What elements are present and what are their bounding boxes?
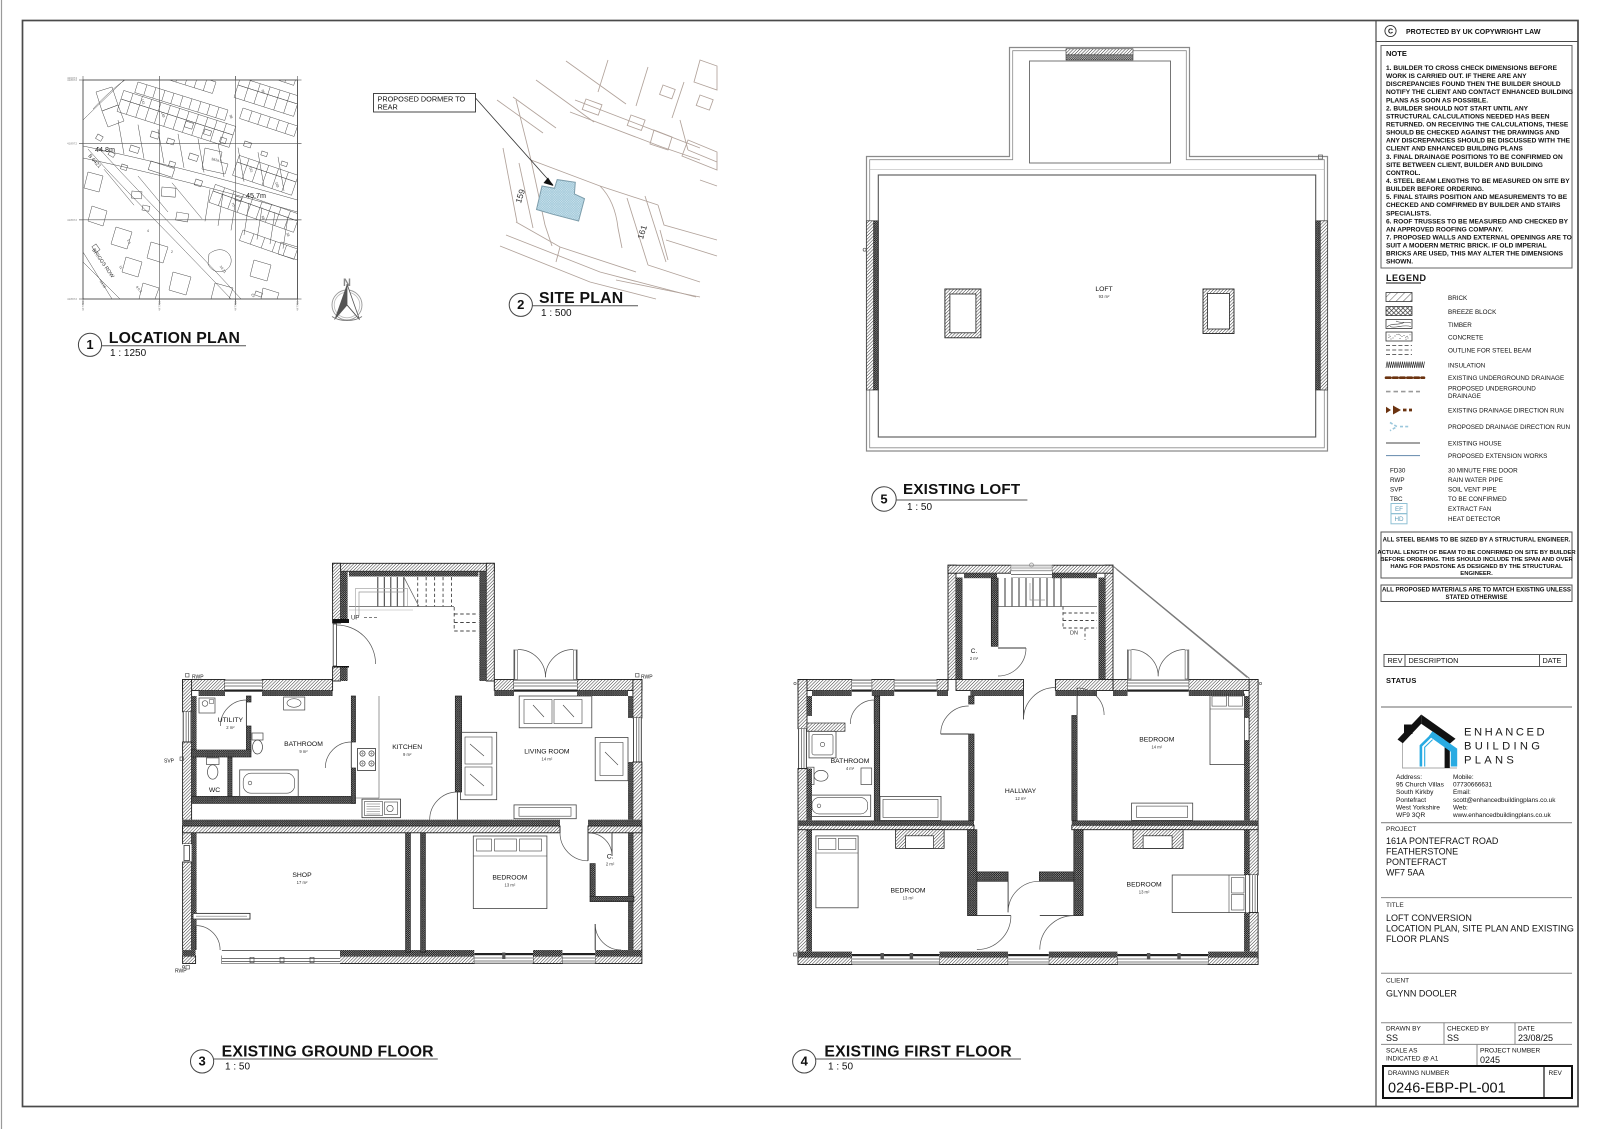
svg-text:ALL PROPOSED MATERIALS ARE TO: ALL PROPOSED MATERIALS ARE TO MATCH EXIS… [1382,587,1571,594]
svg-text:13 m²: 13 m² [1139,889,1150,894]
svg-text:0246-EBP-PL-001: 0246-EBP-PL-001 [1388,1081,1506,1097]
svg-text:WC: WC [209,787,220,794]
svg-text:12 m²: 12 m² [1015,796,1026,801]
svg-text:HEAT DETECTOR: HEAT DETECTOR [1448,516,1501,523]
svg-text:BEDROOM: BEDROOM [492,874,527,881]
svg-text:447750: 447750 [81,301,85,311]
svg-text:ACTUAL LENGTH OF BEAM TO BE CO: ACTUAL LENGTH OF BEAM TO BE CONFIRMED ON… [1377,550,1576,556]
svg-text:CLIENT AND ENHANCED BUILDING P: CLIENT AND ENHANCED BUILDING PLANS [1386,146,1523,153]
svg-text:9 m²: 9 m² [403,752,412,757]
svg-text:418972: 418972 [67,142,77,146]
svg-text:CHECKED AND COMFIRMED BY BUILD: CHECKED AND COMFIRMED BY BUILDER AND STA… [1386,202,1561,209]
svg-text:SS: SS [1447,1033,1459,1043]
svg-text:SHOWN.: SHOWN. [1386,259,1413,266]
svg-text:STATUS: STATUS [1386,676,1417,685]
svg-text:44.8m: 44.8m [95,145,115,154]
svg-text:REV: REV [1388,656,1403,665]
svg-text:PROTECTED BY UK COPYWRIGHT LAW: PROTECTED BY UK COPYWRIGHT LAW [1406,29,1541,36]
svg-text:ENHANCED: ENHANCED [1464,727,1547,739]
svg-text:7. PROPOSED WALLS AND EXTERNAL: 7. PROPOSED WALLS AND EXTERNAL OPENINGS … [1386,234,1572,241]
svg-text:161A PONTEFRACT ROAD: 161A PONTEFRACT ROAD [1386,836,1499,846]
svg-text:scott@enhancedbuildingplans.co: scott@enhancedbuildingplans.co.uk [1453,797,1556,804]
svg-text:South Kirkby: South Kirkby [1396,789,1434,796]
svg-text:5. FINAL STAIRS POSITION AND M: 5. FINAL STAIRS POSITION AND MEASUREMENT… [1386,194,1568,201]
svg-text:KITCHEN: KITCHEN [392,744,422,751]
svg-text:C.: C. [607,854,614,861]
svg-text:BRICK: BRICK [1448,295,1468,302]
svg-text:LOFT: LOFT [1095,286,1112,293]
svg-text:RAIN WATER PIPE: RAIN WATER PIPE [1448,477,1503,484]
svg-text:RWP: RWP [1390,477,1405,484]
svg-text:4 m²: 4 m² [846,766,855,771]
svg-text:SVP: SVP [1390,487,1403,494]
svg-text:PLANS: PLANS [1464,755,1517,767]
svg-text:SPECIALISTS.: SPECIALISTS. [1386,210,1431,217]
svg-text:1. BUILDER TO CROSS CHECK DIME: 1. BUILDER TO CROSS CHECK DIMENSIONS BEF… [1386,65,1558,72]
svg-text:BUILDER BEFORE ORDERING.: BUILDER BEFORE ORDERING. [1386,186,1484,193]
svg-text:CONTROL.: CONTROL. [1386,170,1421,177]
svg-text:13 m²: 13 m² [903,896,914,901]
svg-text:WORK IS CARRIED OUT. IF THERE: WORK IS CARRIED OUT. IF THERE ARE ANY [1386,73,1527,80]
svg-text:STRUCTURAL CALCULATIONS NEEDED: STRUCTURAL CALCULATIONS NEEDED HAS BEEN [1386,113,1550,120]
svg-text:BRICKS ARE USED, THIS MAY ALTE: BRICKS ARE USED, THIS MAY ALTER THE DIME… [1386,251,1564,258]
svg-text:3: 3 [198,1054,205,1069]
svg-text:DRAWING NUMBER: DRAWING NUMBER [1388,1070,1449,1077]
svg-text:C: C [1388,29,1393,36]
svg-text:GLYNN DOOLER: GLYNN DOOLER [1386,989,1457,999]
svg-text:Pontefract: Pontefract [1396,797,1426,804]
svg-text:BEDROOM: BEDROOM [1139,736,1174,743]
svg-text:5: 5 [880,491,887,506]
svg-text:STATED OTHERWISE: STATED OTHERWISE [1446,594,1508,601]
svg-text:3. FINAL DRAINAGE POSITIONS TO: 3. FINAL DRAINAGE POSITIONS TO BE CONFIR… [1386,154,1563,161]
svg-text:1 : 50: 1 : 50 [907,502,932,513]
svg-text:RWP: RWP [192,675,204,681]
svg-text:SITE BETWEEN CLIENT, BUILDER A: SITE BETWEEN CLIENT, BUILDER AND BUILDIN… [1386,162,1543,169]
svg-text:TO BE CONFIRMED: TO BE CONFIRMED [1448,496,1507,503]
svg-text:2 m²: 2 m² [606,862,615,867]
svg-text:Mobile:: Mobile: [1453,774,1474,781]
svg-text:1 : 1250: 1 : 1250 [110,348,147,359]
svg-text:EXISTING FIRST FLOOR: EXISTING FIRST FLOOR [824,1044,1012,1061]
svg-text:WF7 5AA: WF7 5AA [1386,868,1425,878]
svg-text:PROJECT: PROJECT [1386,826,1416,833]
svg-text:REV: REV [1549,1070,1563,1077]
svg-text:SCALE AS: SCALE AS [1386,1048,1418,1055]
svg-text:EXISTING GROUND FLOOR: EXISTING GROUND FLOOR [222,1044,435,1061]
svg-text:TITLE: TITLE [1386,902,1404,909]
svg-text:BEDROOM: BEDROOM [1127,881,1162,888]
svg-text:SHOP: SHOP [292,872,312,879]
svg-text:Address:: Address: [1396,774,1422,781]
svg-text:SVP: SVP [164,759,175,765]
svg-text:TBC: TBC [1390,496,1403,503]
svg-text:PROJECT NUMBER: PROJECT NUMBER [1480,1048,1540,1055]
svg-text:0245: 0245 [1480,1055,1500,1065]
svg-text:PLANS AS SOON AS POSSIBLE.: PLANS AS SOON AS POSSIBLE. [1386,97,1488,104]
svg-text:4: 4 [147,229,149,233]
svg-text:9 m²: 9 m² [299,749,308,754]
svg-text:INDICATED @ A1: INDICATED @ A1 [1386,1056,1439,1063]
svg-text:PROPOSED EXTENSION WORKS: PROPOSED EXTENSION WORKS [1448,453,1547,460]
svg-text:93 m²: 93 m² [1099,294,1110,299]
svg-text:EXISTING HOUSE: EXISTING HOUSE [1448,440,1502,447]
svg-text:UTILITY: UTILITY [218,717,244,724]
svg-text:1 : 50: 1 : 50 [225,1062,250,1073]
svg-text:45.7m: 45.7m [246,191,266,200]
svg-text:2 m²: 2 m² [210,795,219,800]
svg-text:CHECKED BY: CHECKED BY [1447,1026,1490,1033]
svg-text:FEATHERSTONE: FEATHERSTONE [1386,847,1458,857]
svg-text:420074: 420074 [67,76,77,80]
svg-text:PONTEFRACT: PONTEFRACT [1386,857,1448,867]
svg-text:LOCATION PLAN, SITE PLAN AND E: LOCATION PLAN, SITE PLAN AND EXISTING [1386,924,1574,934]
svg-text:DRAWN BY: DRAWN BY [1386,1026,1421,1033]
svg-text:HALLWAY: HALLWAY [1005,788,1037,795]
svg-text:2 m²: 2 m² [226,725,235,730]
svg-text:EF: EF [1395,506,1403,513]
svg-text:DRAINAGE: DRAINAGE [1448,393,1481,400]
svg-text:LOFT CONVERSION: LOFT CONVERSION [1386,913,1472,923]
svg-text:CONCRETE: CONCRETE [1448,335,1483,342]
svg-text:EXISTING LOFT: EXISTING LOFT [903,481,1021,498]
svg-text:UP: UP [351,616,359,622]
svg-text:LOCATION PLAN: LOCATION PLAN [109,330,240,347]
svg-text:SS: SS [1386,1033,1398,1043]
svg-text:1 : 500: 1 : 500 [541,308,572,319]
svg-text:418972: 418972 [67,218,77,222]
svg-text:14 m²: 14 m² [1151,744,1162,749]
svg-text:95 Church Villas: 95 Church Villas [1396,782,1445,789]
svg-text:BATHROOM: BATHROOM [284,741,323,748]
svg-text:ANY DISCREPANCIES SHOULD BE DI: ANY DISCREPANCIES SHOULD BE DISCUSSED WI… [1386,138,1571,145]
svg-text:4: 4 [801,1054,809,1069]
svg-text:4. STEEL BEAM LENGTHS TO BE ME: 4. STEEL BEAM LENGTHS TO BE MEASURED ON … [1386,178,1570,185]
svg-text:FLOOR PLANS: FLOOR PLANS [1386,934,1449,944]
svg-text:WF9 3QR: WF9 3QR [1396,812,1426,819]
svg-text:REAR: REAR [378,103,398,112]
svg-text:14 m²: 14 m² [542,756,553,761]
svg-text:2: 2 [171,250,173,254]
svg-text:1 : 50: 1 : 50 [828,1062,853,1073]
svg-text:EXTRACT FAN: EXTRACT FAN [1448,506,1492,513]
svg-text:SOIL VENT PIPE: SOIL VENT PIPE [1448,487,1497,494]
svg-text:DISCREPANCIES FOUND THEN THE B: DISCREPANCIES FOUND THEN THE BUILDER SHO… [1386,81,1561,88]
svg-text:BREEZE BLOCK: BREEZE BLOCK [1448,309,1497,316]
svg-text:BATHROOM: BATHROOM [831,758,870,765]
svg-text:FD30: FD30 [1390,467,1406,474]
svg-text:30 MINUTE FIRE DOOR: 30 MINUTE FIRE DOOR [1448,467,1518,474]
svg-text:23/08/25: 23/08/25 [1518,1033,1553,1043]
svg-text:RWP: RWP [641,675,653,681]
svg-text:RETURNED. ON RECEIVING THE CAL: RETURNED. ON RECEIVING THE CALCULATIONS,… [1386,121,1569,128]
svg-text:BUILDING: BUILDING [1464,741,1543,753]
svg-text:Email:: Email: [1453,789,1471,796]
svg-text:447750: 447750 [157,301,161,311]
svg-text:SUIT A MODERN METRIC BRICK. IF: SUIT A MODERN METRIC BRICK. IF OLD IMPER… [1386,243,1547,250]
svg-text:07730666631: 07730666631 [1453,782,1493,789]
svg-text:DATE: DATE [1543,656,1562,665]
svg-text:www.enhancedbuildingplans.co.u: www.enhancedbuildingplans.co.uk [1452,812,1552,819]
svg-text:SITE PLAN: SITE PLAN [539,290,623,307]
svg-text:ALL STEEL BEAMS TO BE SIZED BY: ALL STEEL BEAMS TO BE SIZED BY A STRUCTU… [1383,538,1571,544]
svg-text:447750: 447750 [233,301,237,311]
svg-text:LEGEND: LEGEND [1386,273,1427,283]
svg-text:CLIENT: CLIENT [1386,978,1409,985]
svg-text:West Yorkshire: West Yorkshire [1396,804,1440,811]
svg-text:EXISTING DRAINAGE DIRECTION RU: EXISTING DRAINAGE DIRECTION RUN [1448,407,1564,414]
svg-text:17 m²: 17 m² [297,880,308,885]
svg-text:AN APPROVED ROOFING COMPANY.: AN APPROVED ROOFING COMPANY. [1386,226,1503,233]
svg-text:NOTIFY THE CLIENT AND CONTACT: NOTIFY THE CLIENT AND CONTACT ENHANCED B… [1386,89,1573,96]
svg-text:RWP: RWP [175,969,187,975]
svg-text:EXISTING UNDERGROUND DRAINAGE: EXISTING UNDERGROUND DRAINAGE [1448,375,1564,382]
svg-text:INSULATION: INSULATION [1448,363,1486,370]
svg-text:2 m²: 2 m² [970,656,979,661]
svg-text:C.: C. [971,648,978,655]
svg-text:TIMBER: TIMBER [1448,322,1472,329]
svg-text:DESCRIPTION: DESCRIPTION [1409,656,1459,665]
svg-text:DN: DN [1070,631,1078,637]
svg-text:SHOULD BE CHECKED AGAINST THE: SHOULD BE CHECKED AGAINST THE DRAWINGS A… [1386,130,1560,137]
svg-text:PROPOSED DRAINAGE DIRECTION RU: PROPOSED DRAINAGE DIRECTION RUN [1448,424,1571,431]
svg-text:HANG FOR PADSTONE AS DESIGNED: HANG FOR PADSTONE AS DESIGNED BY THE STR… [1390,564,1563,570]
svg-text:13 m²: 13 m² [505,882,516,887]
svg-text:OUTLINE FOR STEEL BEAM: OUTLINE FOR STEEL BEAM [1448,348,1531,355]
svg-text:BEDROOM: BEDROOM [890,888,925,895]
svg-text:2. BUILDER SHOULD NOT START UN: 2. BUILDER SHOULD NOT START UNTIL ANY [1386,105,1529,112]
svg-text:HD: HD [1394,516,1404,523]
svg-text:PROPOSED UNDERGROUND: PROPOSED UNDERGROUND [1448,386,1536,393]
svg-text:NOTE: NOTE [1386,49,1407,58]
svg-text:Web:: Web: [1453,804,1468,811]
svg-text:2: 2 [517,297,524,312]
svg-text:418972: 418972 [67,297,77,301]
svg-text:6. ROOF TRUSSES TO BE MEASURED: 6. ROOF TRUSSES TO BE MEASURED AND CHECK… [1386,218,1569,225]
svg-text:DATE: DATE [1518,1026,1536,1033]
svg-text:LIVING ROOM: LIVING ROOM [524,748,570,755]
svg-text:ENGINEER.: ENGINEER. [1460,571,1493,577]
svg-text:447750: 447750 [296,301,300,311]
svg-text:BEFORE ORDERING. THIS SHOULD I: BEFORE ORDERING. THIS SHOULD INCLUDE THE… [1380,557,1573,563]
svg-text:1: 1 [86,337,93,352]
